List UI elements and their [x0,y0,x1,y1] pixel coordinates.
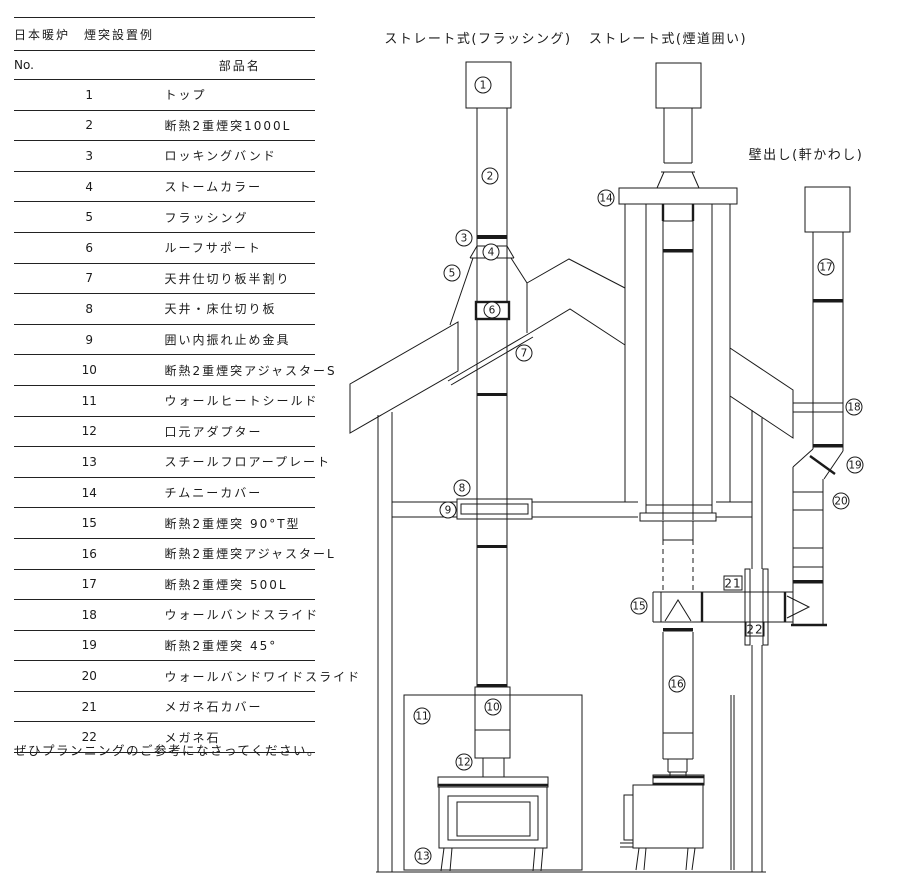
stove2-legs [636,848,695,870]
part-no: 10 [14,355,165,386]
callout-4: 4 [483,244,499,260]
callout-12: 12 [456,754,472,770]
wall-band-slide [793,403,843,412]
parts-table: 日本暖炉 煙突設置例 No. 部品名 1トップ2断熱2重煙突1000L3ロッキン… [14,17,315,753]
part-no: 9 [14,324,165,355]
svg-text:2: 2 [487,171,494,183]
part-name: 断熱2重煙突 500L [165,569,316,600]
stove1-door [448,796,538,840]
column-header-name: 部品名 [165,51,316,80]
svg-text:22: 22 [746,623,763,637]
svg-text:21: 21 [724,577,741,591]
stove1 [438,777,548,871]
chimney2 [619,63,809,777]
part-name: 天井仕切り板半割り [165,263,316,294]
part-row: 6ルーフサポート [14,232,315,263]
part-no: 11 [14,385,165,416]
part-no: 19 [14,630,165,661]
callout-6: 6 [484,302,500,318]
wall-heat-shield [404,695,734,870]
chimney1-pipe [477,108,507,687]
part-no: 8 [14,294,165,325]
part-name: スチールフロアープレート [165,447,316,478]
svg-text:8: 8 [459,483,466,495]
callout-8: 8 [454,480,470,496]
part-name: メガネ石カバー [165,691,316,722]
part-name: ルーフサポート [165,232,316,263]
callout-7: 7 [516,345,532,361]
part-name: 囲い内振れ止め金具 [165,324,316,355]
roof [350,259,793,438]
ceiling-partition-box [457,499,532,519]
table-header-row: No. 部品名 [14,51,315,80]
part-row: 8天井・床仕切り板 [14,294,315,325]
part-row: 10断熱2重煙突アジャスターS [14,355,315,386]
svg-text:11: 11 [415,711,428,723]
svg-text:4: 4 [488,247,495,259]
part-row: 1トップ [14,80,315,111]
part-name: 断熱2重煙突 90°T型 [165,508,316,539]
part-row: 4ストームカラー [14,171,315,202]
locking-band [477,235,507,239]
part-no: 13 [14,447,165,478]
column-header-no: No. [14,51,165,80]
svg-text:3: 3 [461,233,468,245]
elbow-45 [793,449,843,479]
stove2 [620,775,704,870]
callout-19: 19 [847,457,863,473]
callout-18: 18 [846,399,862,415]
part-row: 11ウォールヒートシールド [14,385,315,416]
svg-text:16: 16 [670,679,684,691]
callout-20: 20 [833,493,849,509]
part-row: 17断熱2重煙突 500L [14,569,315,600]
svg-text:12: 12 [457,757,470,769]
part-no: 7 [14,263,165,294]
svg-text:17: 17 [819,262,832,274]
part-row: 12口元アダプター [14,416,315,447]
callout-5: 5 [444,265,460,281]
part-row: 20ウォールバンドワイドスライド [14,661,315,692]
title-straight-enclosure: ストレート式(煙道囲い) [589,32,747,47]
pipe-end-chevron [787,596,809,618]
adjuster-dashed-section [663,540,693,592]
part-row: 18ウォールバンドスライド [14,600,315,631]
part-row: 14チムニーカバー [14,477,315,508]
house-structure [376,410,766,872]
part-name: 口元アダプター [165,416,316,447]
stove1-window [457,802,530,836]
part-name: ストームカラー [165,171,316,202]
pipe-adjuster-s [475,687,510,758]
part-name: 断熱2重煙突 45° [165,630,316,661]
part-no: 16 [14,538,165,569]
callout-16: 16 [669,676,685,692]
callout-14: 14 [598,190,614,206]
chimney-cover [619,188,737,204]
svg-text:7: 7 [521,348,528,360]
title-wall-exit: 壁出し(軒かわし) [749,148,864,163]
part-no: 4 [14,171,165,202]
callout-15: 15 [631,598,647,614]
part-row: 2断熱2重煙突1000L [14,110,315,141]
callout-22: 22 [746,622,764,637]
part-name: 断熱2重煙突アジャスターS [165,355,316,386]
part-name: ウォールヒートシールド [165,385,316,416]
table-title-row: 日本暖炉 煙突設置例 [14,18,315,51]
callout-1: 1 [475,77,491,93]
part-row: 9囲い内振れ止め金具 [14,324,315,355]
part-name: ウォールバンドワイドスライド [165,661,316,692]
table-title: 日本暖炉 煙突設置例 [14,18,315,51]
callout-13: 13 [415,848,431,864]
stove2-handle [624,795,633,840]
part-no: 6 [14,232,165,263]
part-row: 15断熱2重煙突 90°T型 [14,508,315,539]
part-row: 13スチールフロアープレート [14,447,315,478]
part-no: 21 [14,691,165,722]
part-no: 2 [14,110,165,141]
part-row: 7天井仕切り板半割り [14,263,315,294]
part-row: 21メガネ石カバー [14,691,315,722]
part-no: 17 [14,569,165,600]
part-no: 12 [14,416,165,447]
part-no: 1 [14,80,165,111]
ceiling-flange [640,505,716,521]
svg-text:14: 14 [599,193,613,205]
svg-text:9: 9 [445,505,452,517]
part-name: ロッキングバンド [165,141,316,172]
svg-text:6: 6 [489,305,496,317]
callout-17: 17 [818,259,834,275]
callout-2: 2 [482,168,498,184]
part-name: チムニーカバー [165,477,316,508]
wall-band-wide-slide [793,580,823,584]
part-name: 断熱2重煙突1000L [165,110,316,141]
callout-9: 9 [440,502,456,518]
part-no: 18 [14,600,165,631]
part-no: 5 [14,202,165,233]
stove2-adapter [663,759,693,777]
part-no: 3 [14,141,165,172]
chimney3 [791,187,850,625]
svg-text:19: 19 [848,460,861,472]
part-no: 14 [14,477,165,508]
callout-11: 11 [414,708,430,724]
callout-21: 21 [724,576,742,591]
part-row: 3ロッキングバンド [14,141,315,172]
part-row: 5フラッシング [14,202,315,233]
svg-text:13: 13 [416,851,429,863]
svg-text:18: 18 [847,402,860,414]
callout-3: 3 [456,230,472,246]
part-row: 19断熱2重煙突 45° [14,630,315,661]
stove1-legs [441,848,543,871]
callout-10: 10 [485,699,501,715]
part-no: 20 [14,661,165,692]
svg-text:20: 20 [834,496,847,508]
part-name: 断熱2重煙突アジャスターL [165,538,316,569]
part-row: 16断熱2重煙突アジャスターL [14,538,315,569]
title-straight-flashing: ストレート式(フラッシング) [384,32,571,47]
chimney2-top-cap [656,63,701,108]
svg-text:5: 5 [449,268,456,280]
mouth-adapter [483,758,504,777]
svg-text:10: 10 [486,702,499,714]
svg-text:15: 15 [632,601,645,613]
part-no: 15 [14,508,165,539]
part-name: 天井・床仕切り板 [165,294,316,325]
part-name: トップ [165,80,316,111]
part-name: フラッシング [165,202,316,233]
part-name: ウォールバンドスライド [165,600,316,631]
footer-note: ぜひプランニングのご参考になさってください。 [14,740,321,759]
chimney3-top-cap [805,187,850,232]
svg-text:1: 1 [480,80,487,92]
tee-90-joint [653,592,809,622]
